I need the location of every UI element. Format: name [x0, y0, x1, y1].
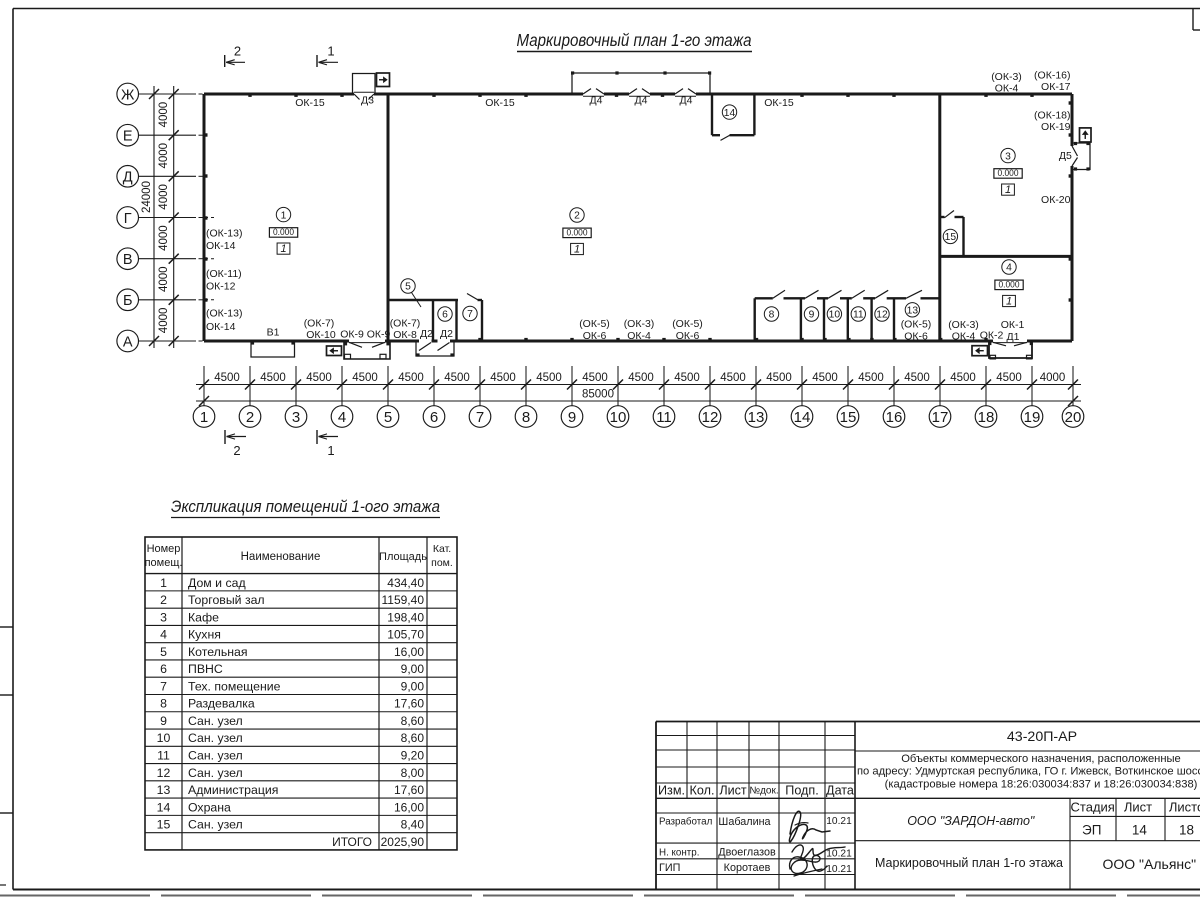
svg-text:(ОК-13): (ОК-13): [206, 308, 242, 320]
svg-text:Кухня: Кухня: [188, 628, 221, 642]
svg-text:1: 1: [1005, 184, 1011, 196]
svg-text:ОК-6: ОК-6: [583, 330, 607, 342]
svg-text:11: 11: [853, 310, 864, 321]
svg-text:Экспликация помещений 1-ого эт: Экспликация помещений 1-ого этажа: [171, 497, 440, 516]
svg-text:9,20: 9,20: [401, 749, 425, 763]
svg-text:2: 2: [233, 443, 240, 458]
svg-text:0.000: 0.000: [999, 280, 1020, 290]
svg-text:Листов: Листов: [1169, 800, 1200, 815]
svg-text:8: 8: [160, 697, 167, 711]
svg-text:4500: 4500: [858, 372, 884, 384]
svg-text:2: 2: [246, 409, 254, 426]
svg-text:4500: 4500: [444, 372, 470, 384]
svg-text:В1: В1: [267, 327, 280, 339]
svg-text:13: 13: [907, 306, 919, 317]
svg-text:8,00: 8,00: [401, 766, 425, 780]
svg-text:4500: 4500: [582, 372, 608, 384]
svg-text:ОК-17: ОК-17: [1041, 81, 1071, 93]
svg-text:ООО "Альянс": ООО "Альянс": [1102, 856, 1196, 872]
svg-text:Сан. узел: Сан. узел: [188, 818, 243, 832]
svg-text:10.21: 10.21: [826, 816, 852, 827]
svg-text:Охрана: Охрана: [188, 800, 231, 814]
svg-text:18: 18: [978, 409, 995, 426]
svg-text:4500: 4500: [674, 372, 700, 384]
svg-text:16,00: 16,00: [394, 645, 424, 659]
svg-text:Тех. помещение: Тех. помещение: [188, 679, 281, 693]
svg-text:ОК-15: ОК-15: [295, 97, 325, 109]
svg-text:В: В: [123, 252, 133, 268]
svg-text:Изм.: Изм.: [658, 784, 685, 798]
svg-text:4500: 4500: [214, 372, 240, 384]
svg-text:Котельная: Котельная: [188, 645, 248, 659]
svg-text:Подп.: Подп.: [785, 784, 818, 798]
svg-text:4500: 4500: [306, 372, 332, 384]
svg-text:ОК-10: ОК-10: [306, 329, 336, 341]
svg-text:Разработал: Разработал: [659, 817, 713, 828]
svg-text:Н. контр.: Н. контр.: [659, 847, 699, 858]
svg-text:Шабалина: Шабалина: [718, 816, 770, 828]
svg-text:ОК-19: ОК-19: [1041, 121, 1071, 133]
svg-text:(кадастровые номера 18:26:0300: (кадастровые номера 18:26:030034:837 и 1…: [885, 779, 1198, 791]
svg-text:3: 3: [160, 610, 167, 624]
svg-text:9,00: 9,00: [401, 662, 425, 676]
svg-text:1: 1: [281, 210, 287, 221]
svg-text:198,40: 198,40: [387, 610, 424, 624]
svg-text:1: 1: [1006, 296, 1012, 308]
svg-text:1: 1: [327, 443, 334, 458]
svg-text:Номер: Номер: [147, 543, 181, 555]
svg-text:14: 14: [157, 800, 171, 814]
svg-text:Дата: Дата: [826, 784, 854, 798]
svg-text:4500: 4500: [536, 372, 562, 384]
svg-text:2: 2: [160, 593, 167, 607]
svg-text:(ОК-3): (ОК-3): [948, 319, 979, 331]
svg-text:4: 4: [160, 628, 167, 642]
svg-text:20: 20: [1065, 409, 1082, 426]
svg-text:ОК-14: ОК-14: [206, 240, 236, 252]
svg-text:14: 14: [724, 108, 736, 119]
svg-text:Кафе: Кафе: [188, 610, 219, 624]
svg-text:9: 9: [809, 310, 815, 321]
svg-text:4: 4: [338, 409, 346, 426]
svg-text:Д2: Д2: [420, 328, 433, 340]
svg-text:8: 8: [522, 409, 530, 426]
svg-text:№док.: №док.: [749, 786, 778, 797]
svg-text:11: 11: [157, 749, 170, 763]
svg-text:4500: 4500: [352, 372, 378, 384]
svg-text:4000: 4000: [158, 143, 170, 169]
svg-text:Администрация: Администрация: [188, 783, 278, 797]
svg-text:Е: Е: [123, 129, 133, 145]
svg-text:4: 4: [1006, 263, 1012, 274]
svg-text:17,60: 17,60: [394, 783, 424, 797]
svg-text:10: 10: [157, 731, 171, 745]
svg-text:24000: 24000: [141, 181, 153, 213]
svg-text:16,00: 16,00: [394, 800, 424, 814]
svg-text:4000: 4000: [1040, 372, 1066, 384]
svg-text:Раздевалка: Раздевалка: [188, 697, 255, 711]
svg-text:0.000: 0.000: [567, 228, 588, 238]
svg-text:17,60: 17,60: [394, 697, 424, 711]
svg-text:7: 7: [160, 679, 167, 693]
svg-text:9: 9: [568, 409, 576, 426]
svg-text:(ОК-5): (ОК-5): [672, 318, 703, 330]
svg-text:15: 15: [840, 409, 857, 426]
svg-text:6: 6: [160, 662, 167, 676]
svg-text:14: 14: [1132, 823, 1148, 838]
svg-text:ОК-2: ОК-2: [980, 330, 1004, 342]
svg-text:ОК-4: ОК-4: [995, 83, 1019, 95]
svg-text:4500: 4500: [628, 372, 654, 384]
svg-text:Д4: Д4: [635, 95, 648, 107]
svg-text:Объекты коммерческого назначен: Объекты коммерческого назначения, распол…: [901, 753, 1181, 765]
svg-text:1: 1: [327, 44, 334, 59]
svg-text:5: 5: [405, 282, 411, 293]
svg-text:2: 2: [574, 211, 580, 222]
svg-text:Д4: Д4: [680, 95, 693, 107]
svg-text:12: 12: [702, 409, 719, 426]
svg-text:ГИП: ГИП: [659, 862, 680, 874]
svg-text:Двоеглазов: Двоеглазов: [718, 847, 776, 859]
svg-text:(ОК-18): (ОК-18): [1034, 110, 1070, 122]
svg-text:Кол.: Кол.: [690, 784, 715, 798]
svg-text:4500: 4500: [260, 372, 286, 384]
svg-text:Кат.: Кат.: [433, 543, 451, 555]
svg-text:(ОК-16): (ОК-16): [1034, 70, 1070, 82]
svg-text:16: 16: [886, 409, 903, 426]
svg-text:(ОК-3): (ОК-3): [991, 71, 1022, 83]
svg-text:3: 3: [1005, 151, 1011, 162]
svg-text:ОК-6: ОК-6: [676, 330, 700, 342]
svg-text:10.21: 10.21: [826, 864, 852, 875]
svg-text:Д3: Д3: [361, 95, 374, 107]
svg-text:Дом и сад: Дом и сад: [188, 576, 246, 590]
svg-text:12: 12: [157, 766, 171, 780]
svg-text:А: А: [123, 334, 133, 350]
svg-text:11: 11: [656, 409, 672, 426]
svg-text:15: 15: [945, 232, 957, 243]
svg-text:8: 8: [769, 310, 775, 321]
svg-text:ОК-4: ОК-4: [627, 330, 651, 342]
svg-text:19: 19: [1024, 409, 1041, 426]
svg-text:(ОК-3): (ОК-3): [624, 318, 655, 330]
svg-text:4500: 4500: [812, 372, 838, 384]
svg-text:8,60: 8,60: [401, 731, 425, 745]
svg-text:Наименование: Наименование: [241, 551, 321, 563]
svg-text:0.000: 0.000: [273, 227, 294, 237]
svg-text:12: 12: [876, 310, 888, 321]
svg-text:ОК-4: ОК-4: [952, 331, 976, 343]
svg-text:по адресу: Удмуртская республи: по адресу: Удмуртская республика, ГО г. …: [857, 766, 1200, 778]
svg-text:ПВНС: ПВНС: [188, 662, 223, 676]
svg-text:ОК-12: ОК-12: [206, 281, 236, 293]
svg-text:4500: 4500: [950, 372, 976, 384]
svg-text:6: 6: [442, 310, 448, 321]
svg-text:Г: Г: [124, 211, 132, 227]
svg-text:Д: Д: [123, 170, 133, 186]
svg-text:Д4: Д4: [590, 95, 603, 107]
svg-text:(ОК-7): (ОК-7): [390, 318, 421, 330]
svg-text:5: 5: [160, 645, 167, 659]
svg-text:Маркировочный план 1-го этажа: Маркировочный план 1-го этажа: [517, 30, 752, 50]
svg-text:17: 17: [932, 409, 949, 426]
svg-text:помещ.: помещ.: [145, 557, 183, 569]
svg-text:Ж: Ж: [121, 87, 135, 103]
svg-text:13: 13: [748, 409, 765, 426]
svg-text:4000: 4000: [158, 102, 170, 128]
svg-text:Лист: Лист: [1124, 800, 1152, 815]
svg-text:Лист: Лист: [719, 784, 747, 798]
svg-text:18: 18: [1179, 823, 1194, 838]
svg-text:Площадь: Площадь: [379, 551, 427, 563]
svg-text:105,70: 105,70: [387, 628, 424, 642]
svg-text:9: 9: [160, 714, 167, 728]
svg-text:85000: 85000: [582, 389, 614, 401]
svg-text:7: 7: [476, 409, 484, 426]
svg-text:1: 1: [160, 576, 167, 590]
svg-text:8,40: 8,40: [401, 818, 425, 832]
svg-text:4000: 4000: [158, 225, 170, 251]
svg-text:6: 6: [430, 409, 438, 426]
svg-text:5: 5: [384, 409, 392, 426]
svg-text:1159,40: 1159,40: [382, 593, 425, 607]
svg-text:пом.: пом.: [431, 557, 453, 569]
svg-text:Б: Б: [123, 293, 133, 309]
svg-text:7: 7: [467, 309, 473, 320]
svg-text:ОК-9: ОК-9: [340, 329, 364, 341]
svg-text:43-20П-АР: 43-20П-АР: [1007, 729, 1077, 745]
svg-text:ООО "ЗАРДОН-авто": ООО "ЗАРДОН-авто": [907, 814, 1035, 828]
svg-text:Д2: Д2: [440, 328, 453, 340]
svg-text:(ОК-7): (ОК-7): [304, 318, 335, 330]
svg-text:ОК-15: ОК-15: [764, 97, 794, 109]
svg-text:1: 1: [280, 243, 286, 255]
svg-text:0.000: 0.000: [998, 168, 1019, 178]
svg-text:15: 15: [157, 818, 171, 832]
svg-text:ОК-14: ОК-14: [206, 321, 236, 333]
svg-text:Д1: Д1: [1007, 331, 1020, 343]
svg-text:4000: 4000: [158, 266, 170, 292]
svg-text:4500: 4500: [996, 372, 1022, 384]
svg-text:(ОК-11): (ОК-11): [206, 268, 242, 280]
svg-text:Сан. узел: Сан. узел: [188, 766, 243, 780]
svg-text:13: 13: [157, 783, 171, 797]
svg-text:Коротаев: Коротаев: [724, 862, 771, 874]
svg-text:Сан. узел: Сан. узел: [188, 749, 243, 763]
svg-text:4500: 4500: [720, 372, 746, 384]
svg-text:ОК-20: ОК-20: [1041, 194, 1071, 206]
svg-text:4500: 4500: [490, 372, 516, 384]
svg-text:Маркировочный план 1-го этажа: Маркировочный план 1-го этажа: [875, 856, 1063, 870]
svg-text:ОК-15: ОК-15: [485, 97, 515, 109]
svg-text:Сан. узел: Сан. узел: [188, 714, 243, 728]
svg-text:Сан. узел: Сан. узел: [188, 731, 243, 745]
svg-text:(ОК-5): (ОК-5): [579, 318, 610, 330]
svg-text:Торговый зал: Торговый зал: [188, 593, 265, 607]
svg-text:2025,90: 2025,90: [381, 835, 425, 849]
svg-text:4000: 4000: [158, 308, 170, 334]
svg-text:1: 1: [200, 409, 208, 426]
svg-text:10: 10: [610, 409, 627, 426]
svg-text:4500: 4500: [398, 372, 424, 384]
svg-text:ОК-1: ОК-1: [1001, 319, 1025, 331]
svg-text:ЭП: ЭП: [1082, 823, 1101, 838]
svg-text:Стадия: Стадия: [1071, 800, 1115, 815]
svg-text:(ОК-5): (ОК-5): [901, 319, 932, 331]
svg-text:9,00: 9,00: [401, 679, 425, 693]
svg-text:3: 3: [292, 409, 300, 426]
svg-text:ИТОГО: ИТОГО: [332, 835, 372, 849]
svg-text:434,40: 434,40: [387, 576, 424, 590]
svg-text:8,60: 8,60: [401, 714, 425, 728]
svg-text:2: 2: [234, 44, 241, 59]
svg-text:4500: 4500: [904, 372, 930, 384]
svg-text:10: 10: [829, 310, 841, 321]
svg-text:4000: 4000: [158, 184, 170, 210]
svg-text:ОК-8: ОК-8: [393, 329, 417, 341]
svg-text:10.21: 10.21: [826, 849, 852, 860]
svg-text:4500: 4500: [766, 372, 792, 384]
svg-text:(ОК-13): (ОК-13): [206, 228, 242, 240]
svg-text:Д5: Д5: [1059, 150, 1072, 162]
svg-text:ОК-9: ОК-9: [367, 329, 391, 341]
svg-text:1: 1: [574, 244, 580, 256]
svg-text:ОК-6: ОК-6: [904, 331, 928, 343]
svg-text:14: 14: [794, 409, 811, 426]
